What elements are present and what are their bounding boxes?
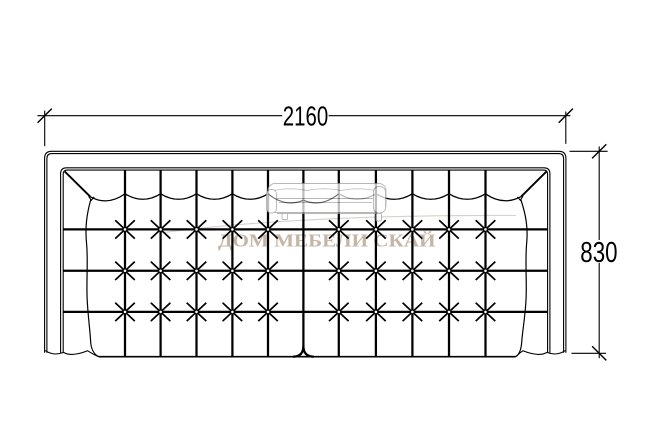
svg-text:ДОМ МЕБЕЛИ СКАЙ: ДОМ МЕБЕЛИ СКАЙ [218,229,436,250]
svg-text:830: 830 [580,237,617,269]
svg-text:2160: 2160 [283,101,328,132]
